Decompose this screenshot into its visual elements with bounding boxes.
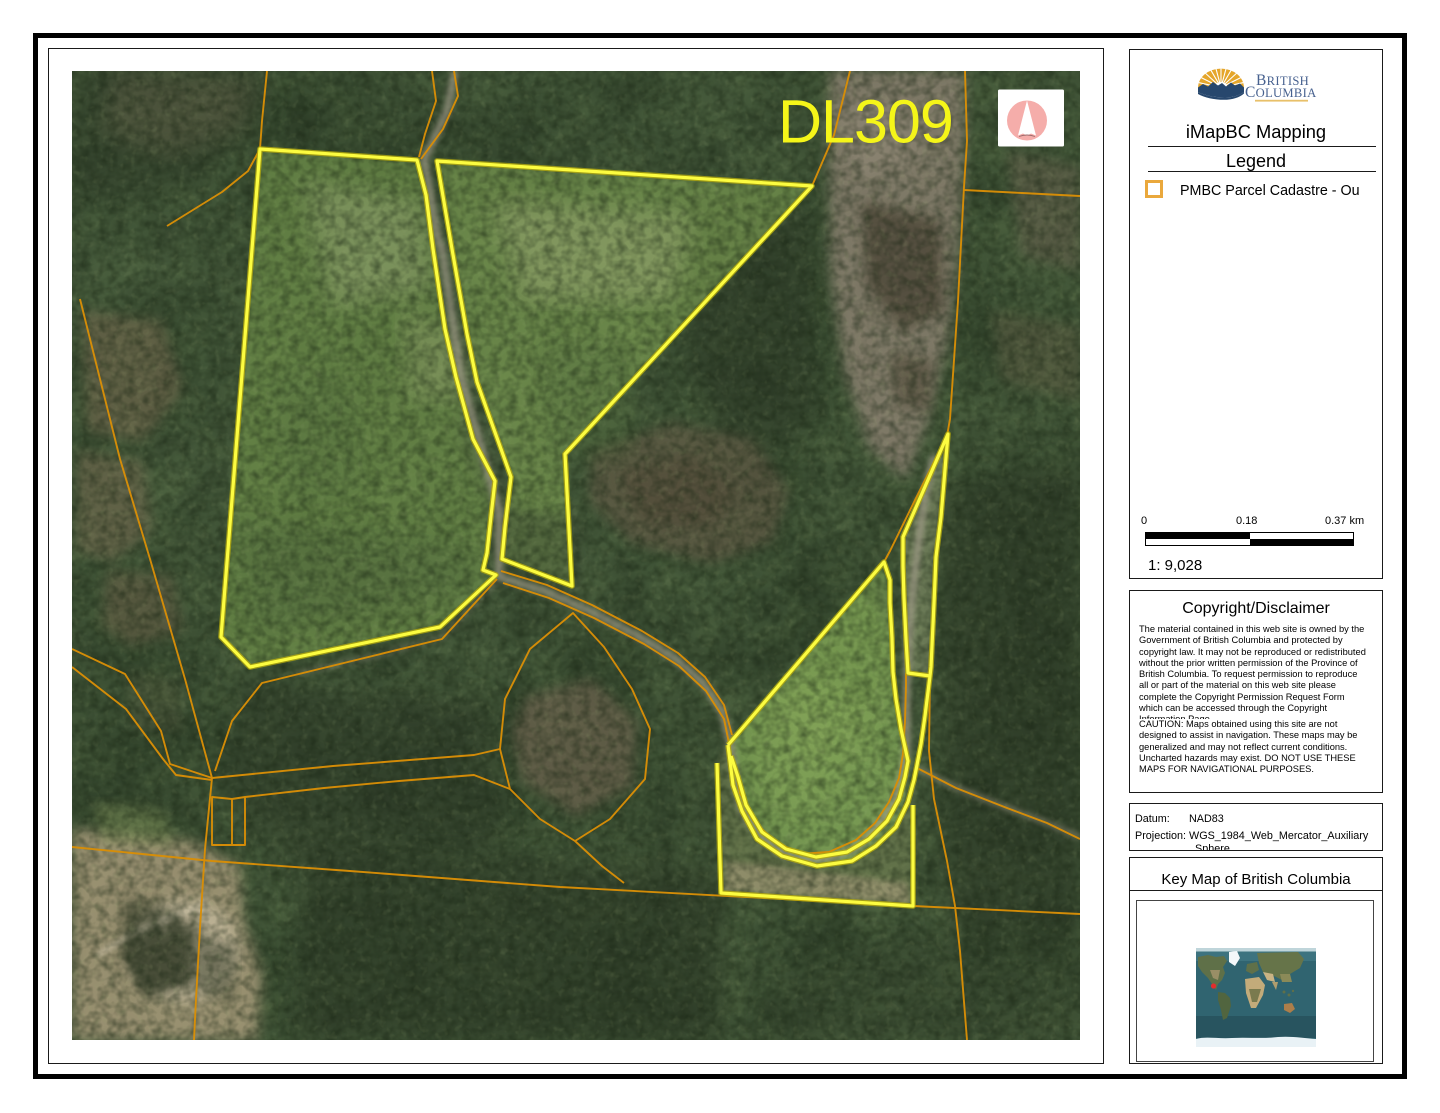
svg-text:COLUMBIA: COLUMBIA xyxy=(1245,84,1317,101)
svg-text:DL309: DL309 xyxy=(778,88,953,156)
